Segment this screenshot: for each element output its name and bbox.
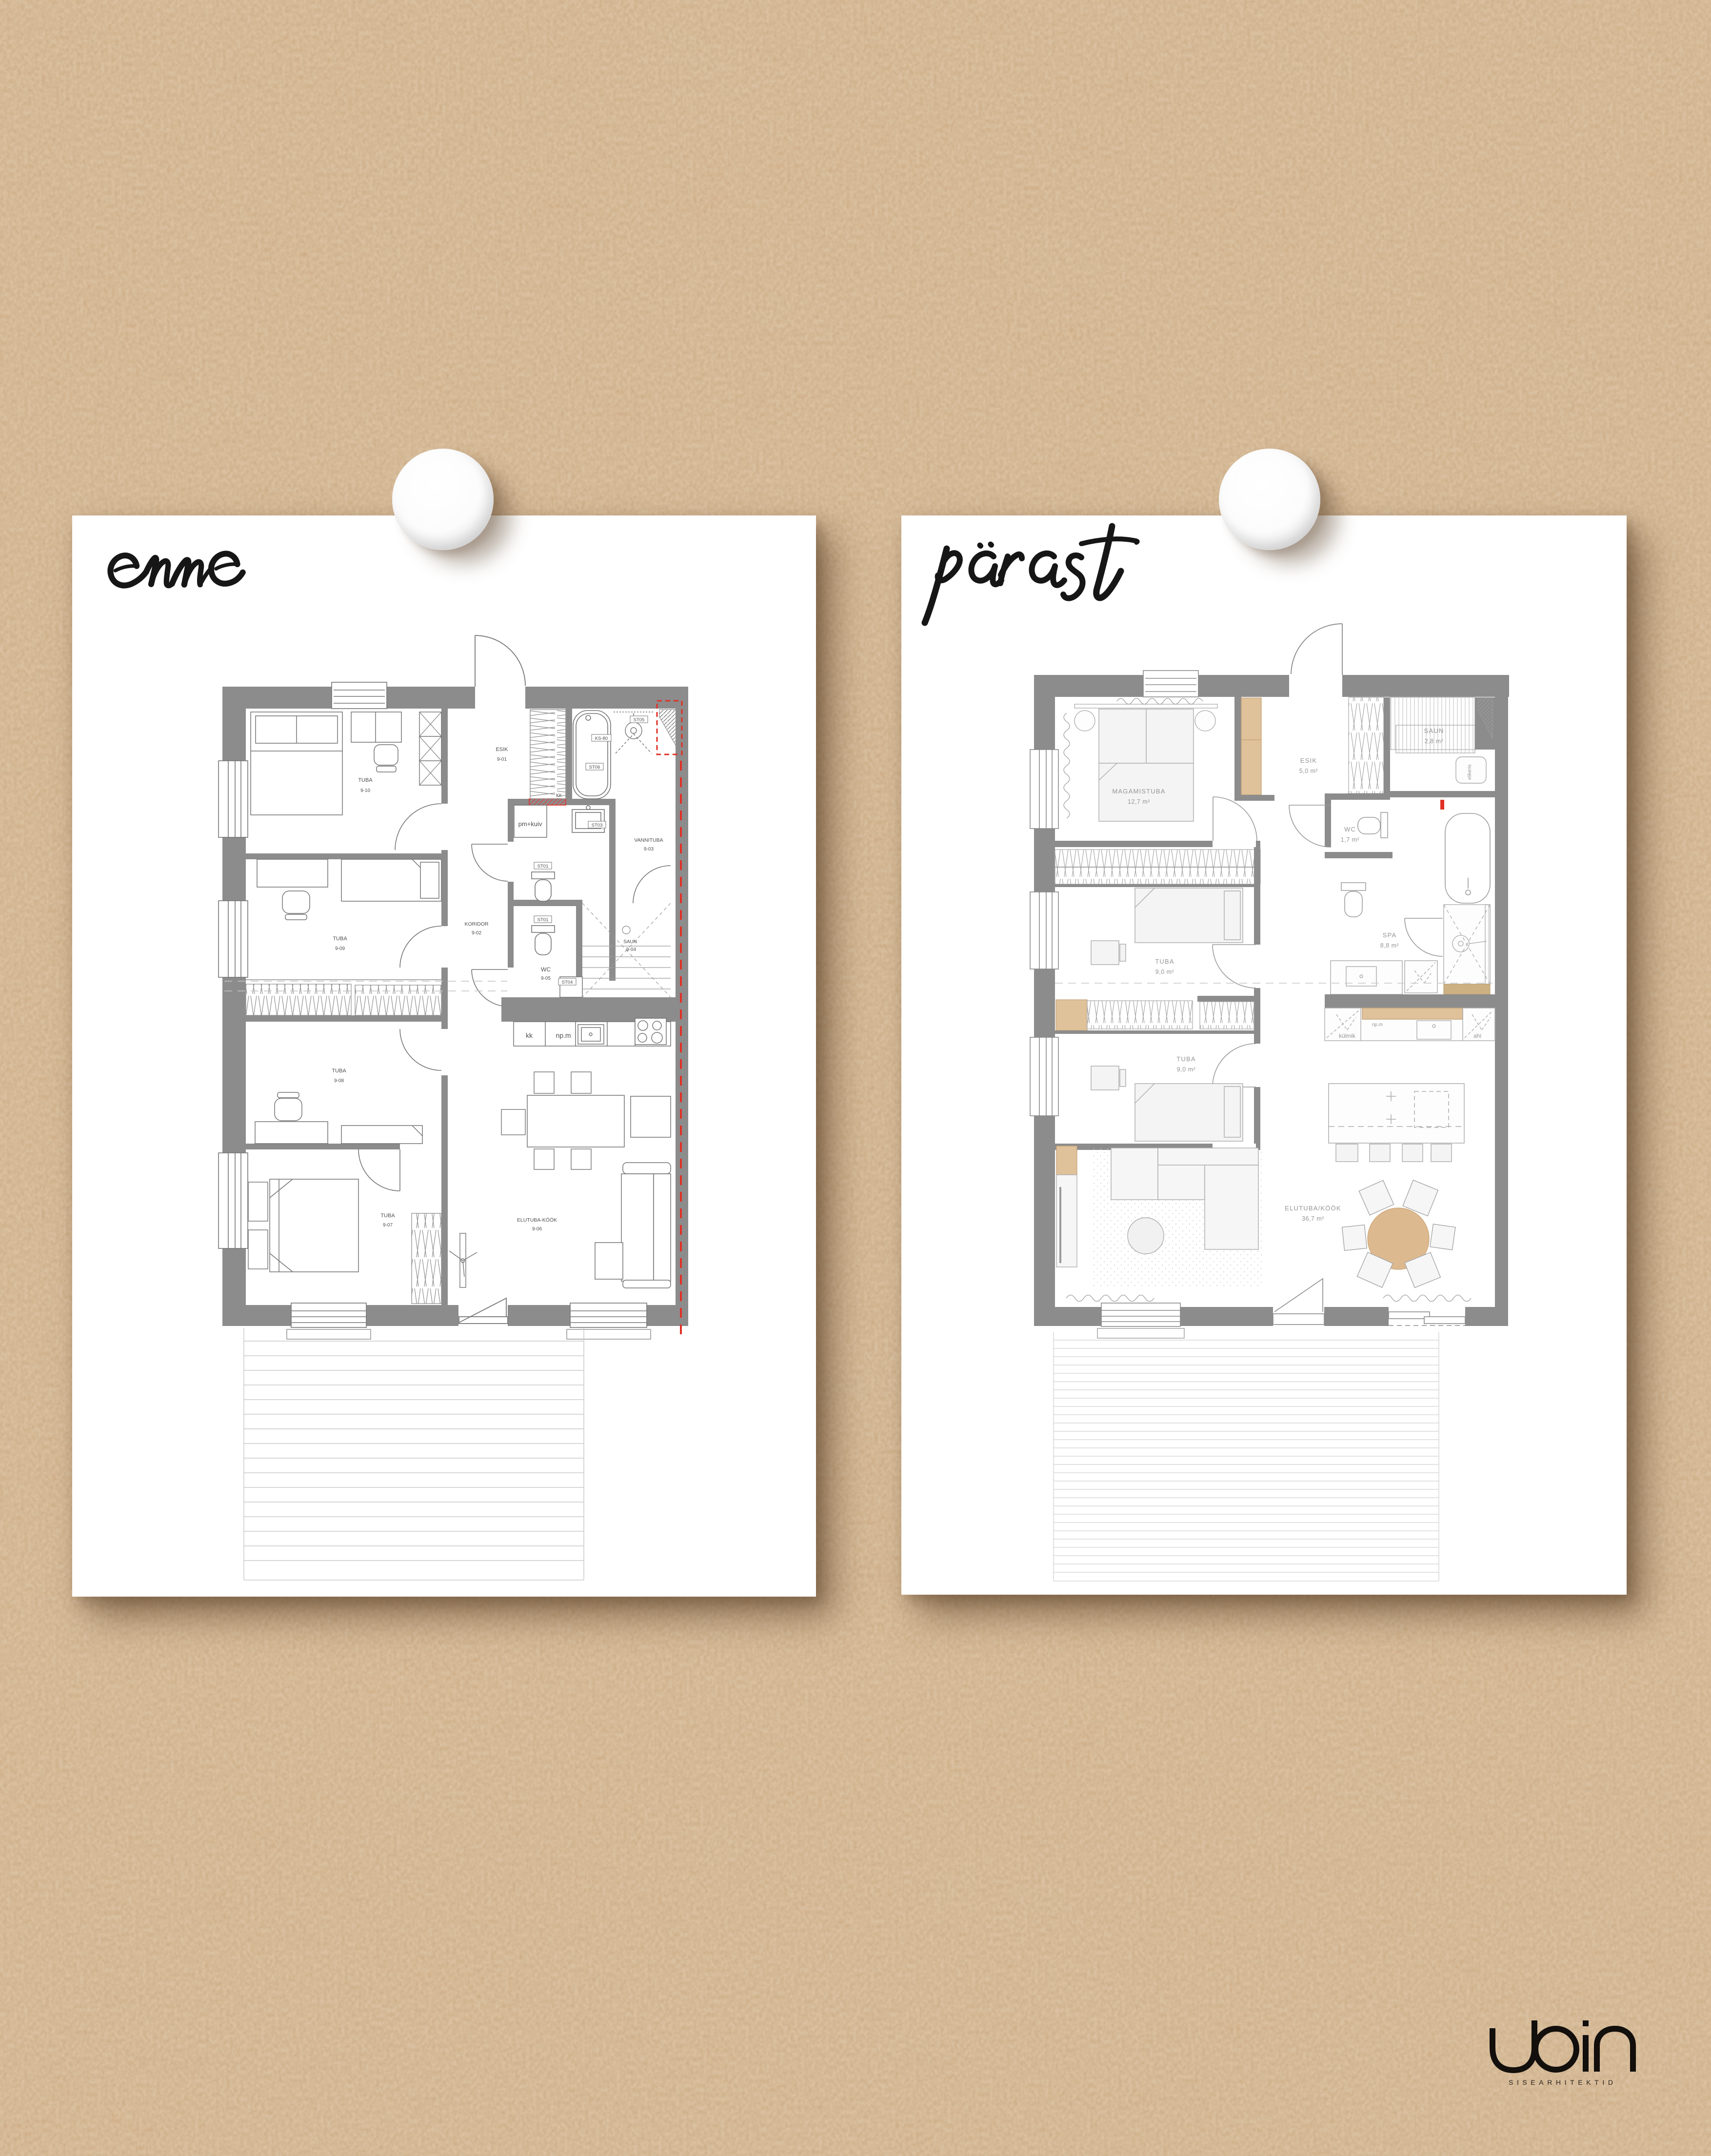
svg-text:9,0 m²: 9,0 m² [1155,969,1174,975]
svg-text:9-01: 9-01 [497,757,507,762]
svg-text:VANNITUBA: VANNITUBA [634,837,663,843]
svg-text:np.m: np.m [1372,1022,1383,1028]
svg-text:8,8 m²: 8,8 m² [1380,942,1399,949]
svg-text:ESIK: ESIK [496,747,508,752]
svg-text:TUBA: TUBA [380,1213,395,1219]
svg-text:9-04: 9-04 [626,947,636,952]
svg-text:9-10: 9-10 [360,788,370,793]
svg-text:ST05: ST05 [634,717,645,723]
svg-text:9-09: 9-09 [335,946,345,951]
svg-text:9-05: 9-05 [541,976,551,981]
svg-text:KK: KK [556,793,562,798]
svg-text:9-08: 9-08 [334,1078,344,1084]
svg-text:KS-80: KS-80 [595,736,608,741]
svg-text:ELUTUBA-KÖÖK: ELUTUBA-KÖÖK [517,1217,557,1223]
svg-text:MAGAMISTUBA: MAGAMISTUBA [1112,788,1165,795]
svg-text:12,7 m²: 12,7 m² [1128,798,1150,805]
svg-text:TUBA: TUBA [1176,1055,1195,1063]
svg-text:kk: kk [526,1031,533,1039]
svg-text:ahi: ahi [1473,1032,1481,1039]
svg-text:TUBA: TUBA [333,936,347,942]
svg-text:ST01: ST01 [537,864,549,869]
svg-text:külmik: külmik [1339,1032,1356,1039]
svg-text:ELUTUBA/KÖÖK: ELUTUBA/KÖÖK [1285,1205,1341,1212]
svg-text:1,7 m²: 1,7 m² [1341,836,1359,843]
svg-text:ESIK: ESIK [1300,757,1317,764]
svg-text:36,7 m²: 36,7 m² [1302,1215,1324,1222]
svg-text:9-06: 9-06 [532,1226,542,1232]
svg-text:9-03: 9-03 [644,847,654,852]
svg-text:SISEARHITEKTID: SISEARHITEKTID [1509,2078,1617,2086]
svg-text:2,8 m²: 2,8 m² [1425,738,1443,745]
svg-text:pm+kuiv: pm+kuiv [518,820,542,828]
svg-text:KORIDOR: KORIDOR [464,921,488,927]
svg-text:9-07: 9-07 [383,1223,393,1228]
svg-text:np.m: np.m [556,1031,571,1039]
svg-text:SAUN: SAUN [623,939,637,945]
svg-text:WC: WC [1344,826,1356,833]
svg-text:SPA: SPA [1383,931,1397,939]
svg-text:ST04: ST04 [562,980,573,985]
svg-text:TUBA: TUBA [332,1068,346,1074]
svg-text:WC: WC [541,966,551,973]
svg-text:ST01: ST01 [537,917,549,923]
svg-text:9,0 m²: 9,0 m² [1177,1066,1195,1073]
svg-text:TUBA: TUBA [1155,958,1174,965]
svg-text:TUBA: TUBA [358,777,373,783]
svg-text:ST06: ST06 [589,765,600,770]
svg-text:elikeris: elikeris [1467,764,1472,779]
svg-text:9-02: 9-02 [472,930,481,936]
svg-text:SAUN: SAUN [1424,727,1444,734]
svg-text:5,0 m²: 5,0 m² [1299,768,1318,774]
svg-text:ST03: ST03 [592,823,603,828]
